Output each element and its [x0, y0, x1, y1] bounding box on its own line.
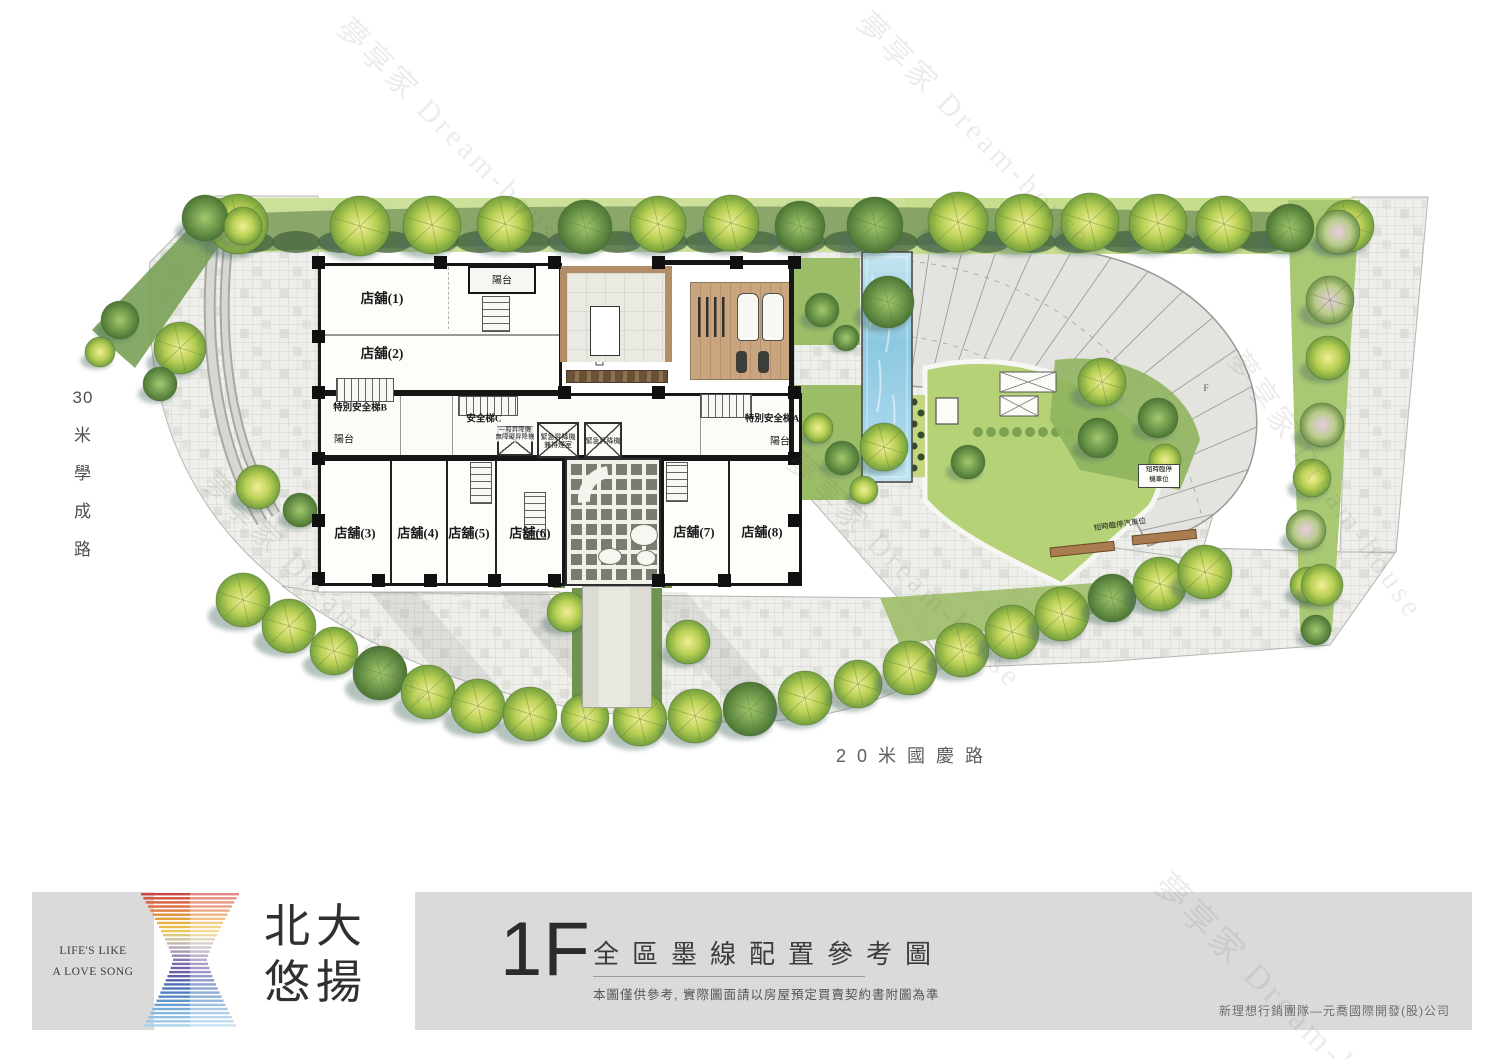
disclaimer-text: 本圖僅供參考, 實際圖面請以房屋預定買賣契約書附圖為準: [593, 984, 939, 1003]
column: [788, 514, 801, 527]
site-plan-poster: 陽台 店舖(1) 店舖(2) 特別安全梯B 安全梯C 特別安全梯A 一般昇降機無…: [0, 0, 1500, 1059]
column: [312, 386, 325, 399]
f-marker: F: [1203, 383, 1208, 393]
stair-c-label: 安全梯C: [466, 415, 501, 426]
column: [488, 574, 501, 587]
shop-label: 店舖(5): [448, 527, 489, 542]
car-icon: [737, 293, 759, 341]
column: [372, 574, 385, 587]
column: [424, 574, 437, 587]
title-underline: [593, 976, 865, 977]
road-label-bottom: 20米國慶路: [836, 742, 994, 768]
project-name-line1: 北大: [264, 898, 368, 954]
car-icon: [762, 293, 784, 341]
stone-icon: [636, 550, 656, 566]
site-plan: 陽台 店舖(1) 店舖(2) 特別安全梯B 安全梯C 特別安全梯A 一般昇降機無…: [0, 0, 1500, 862]
column: [788, 256, 801, 269]
project-name-line2: 悠揚: [264, 954, 368, 1010]
column: [312, 514, 325, 527]
shop-label: 店舖(4): [397, 527, 438, 542]
moto-parking-label: 短時臨停機車位: [1138, 464, 1180, 488]
rainbow-hourglass-logo: [140, 890, 240, 1032]
column: [652, 386, 665, 399]
shop-label: 店舖(8): [741, 526, 782, 541]
column: [312, 452, 325, 465]
floor-label: 1F: [500, 906, 591, 993]
stone-icon: [630, 524, 658, 546]
column: [718, 574, 731, 587]
stair-icon: [666, 462, 688, 502]
shop-label: 店舖(2): [361, 346, 404, 362]
column: [730, 256, 743, 269]
motorcycle-icon: [736, 351, 747, 373]
column: [652, 574, 665, 587]
stair-b-label: 特別安全梯B: [333, 404, 387, 415]
elevator-label: 緊急昇降機: [586, 437, 621, 445]
shop-label: 店舖(7): [673, 526, 714, 541]
column: [434, 256, 447, 269]
column: [312, 256, 325, 269]
map-title: 全區墨線配置參考圖: [593, 934, 944, 971]
column: [312, 330, 325, 343]
column: [558, 386, 571, 399]
balcony-label: 陽台: [492, 275, 512, 287]
shop-label: 店舖(1): [361, 291, 404, 307]
table-icon: [590, 306, 620, 356]
brand-tagline: LIFE'S LIKE A LOVE SONG: [32, 892, 154, 1030]
shop-label: 店舖(3): [334, 527, 375, 542]
column: [548, 574, 561, 587]
bike-rack-icon: [698, 297, 730, 337]
balcony-label: 陽台: [770, 436, 790, 448]
paving-grate: [566, 370, 668, 383]
column: [652, 256, 665, 269]
project-name: 北大 悠揚: [264, 898, 368, 1010]
column: [788, 572, 801, 585]
stone-icon: [598, 548, 622, 565]
balcony-label: 陽台: [334, 434, 354, 446]
elevator-label: 緊急昇降機兼排煙室: [541, 433, 576, 449]
stair-icon: [470, 462, 492, 504]
tagline-line2: A LOVE SONG: [53, 966, 134, 978]
motorcycle-icon: [758, 351, 769, 373]
stair-icon: [482, 296, 510, 332]
column: [788, 386, 801, 399]
entry-walk: [582, 586, 652, 708]
shop-label: 店舖(6): [509, 527, 550, 542]
road-label-left: 30米學成路: [66, 388, 100, 560]
stair-icon: [458, 396, 518, 416]
stair-icon: [336, 378, 394, 402]
elevator-label: 一般昇降機無障礙昇降機: [495, 427, 536, 442]
tagline-line1: LIFE'S LIKE: [59, 945, 126, 957]
